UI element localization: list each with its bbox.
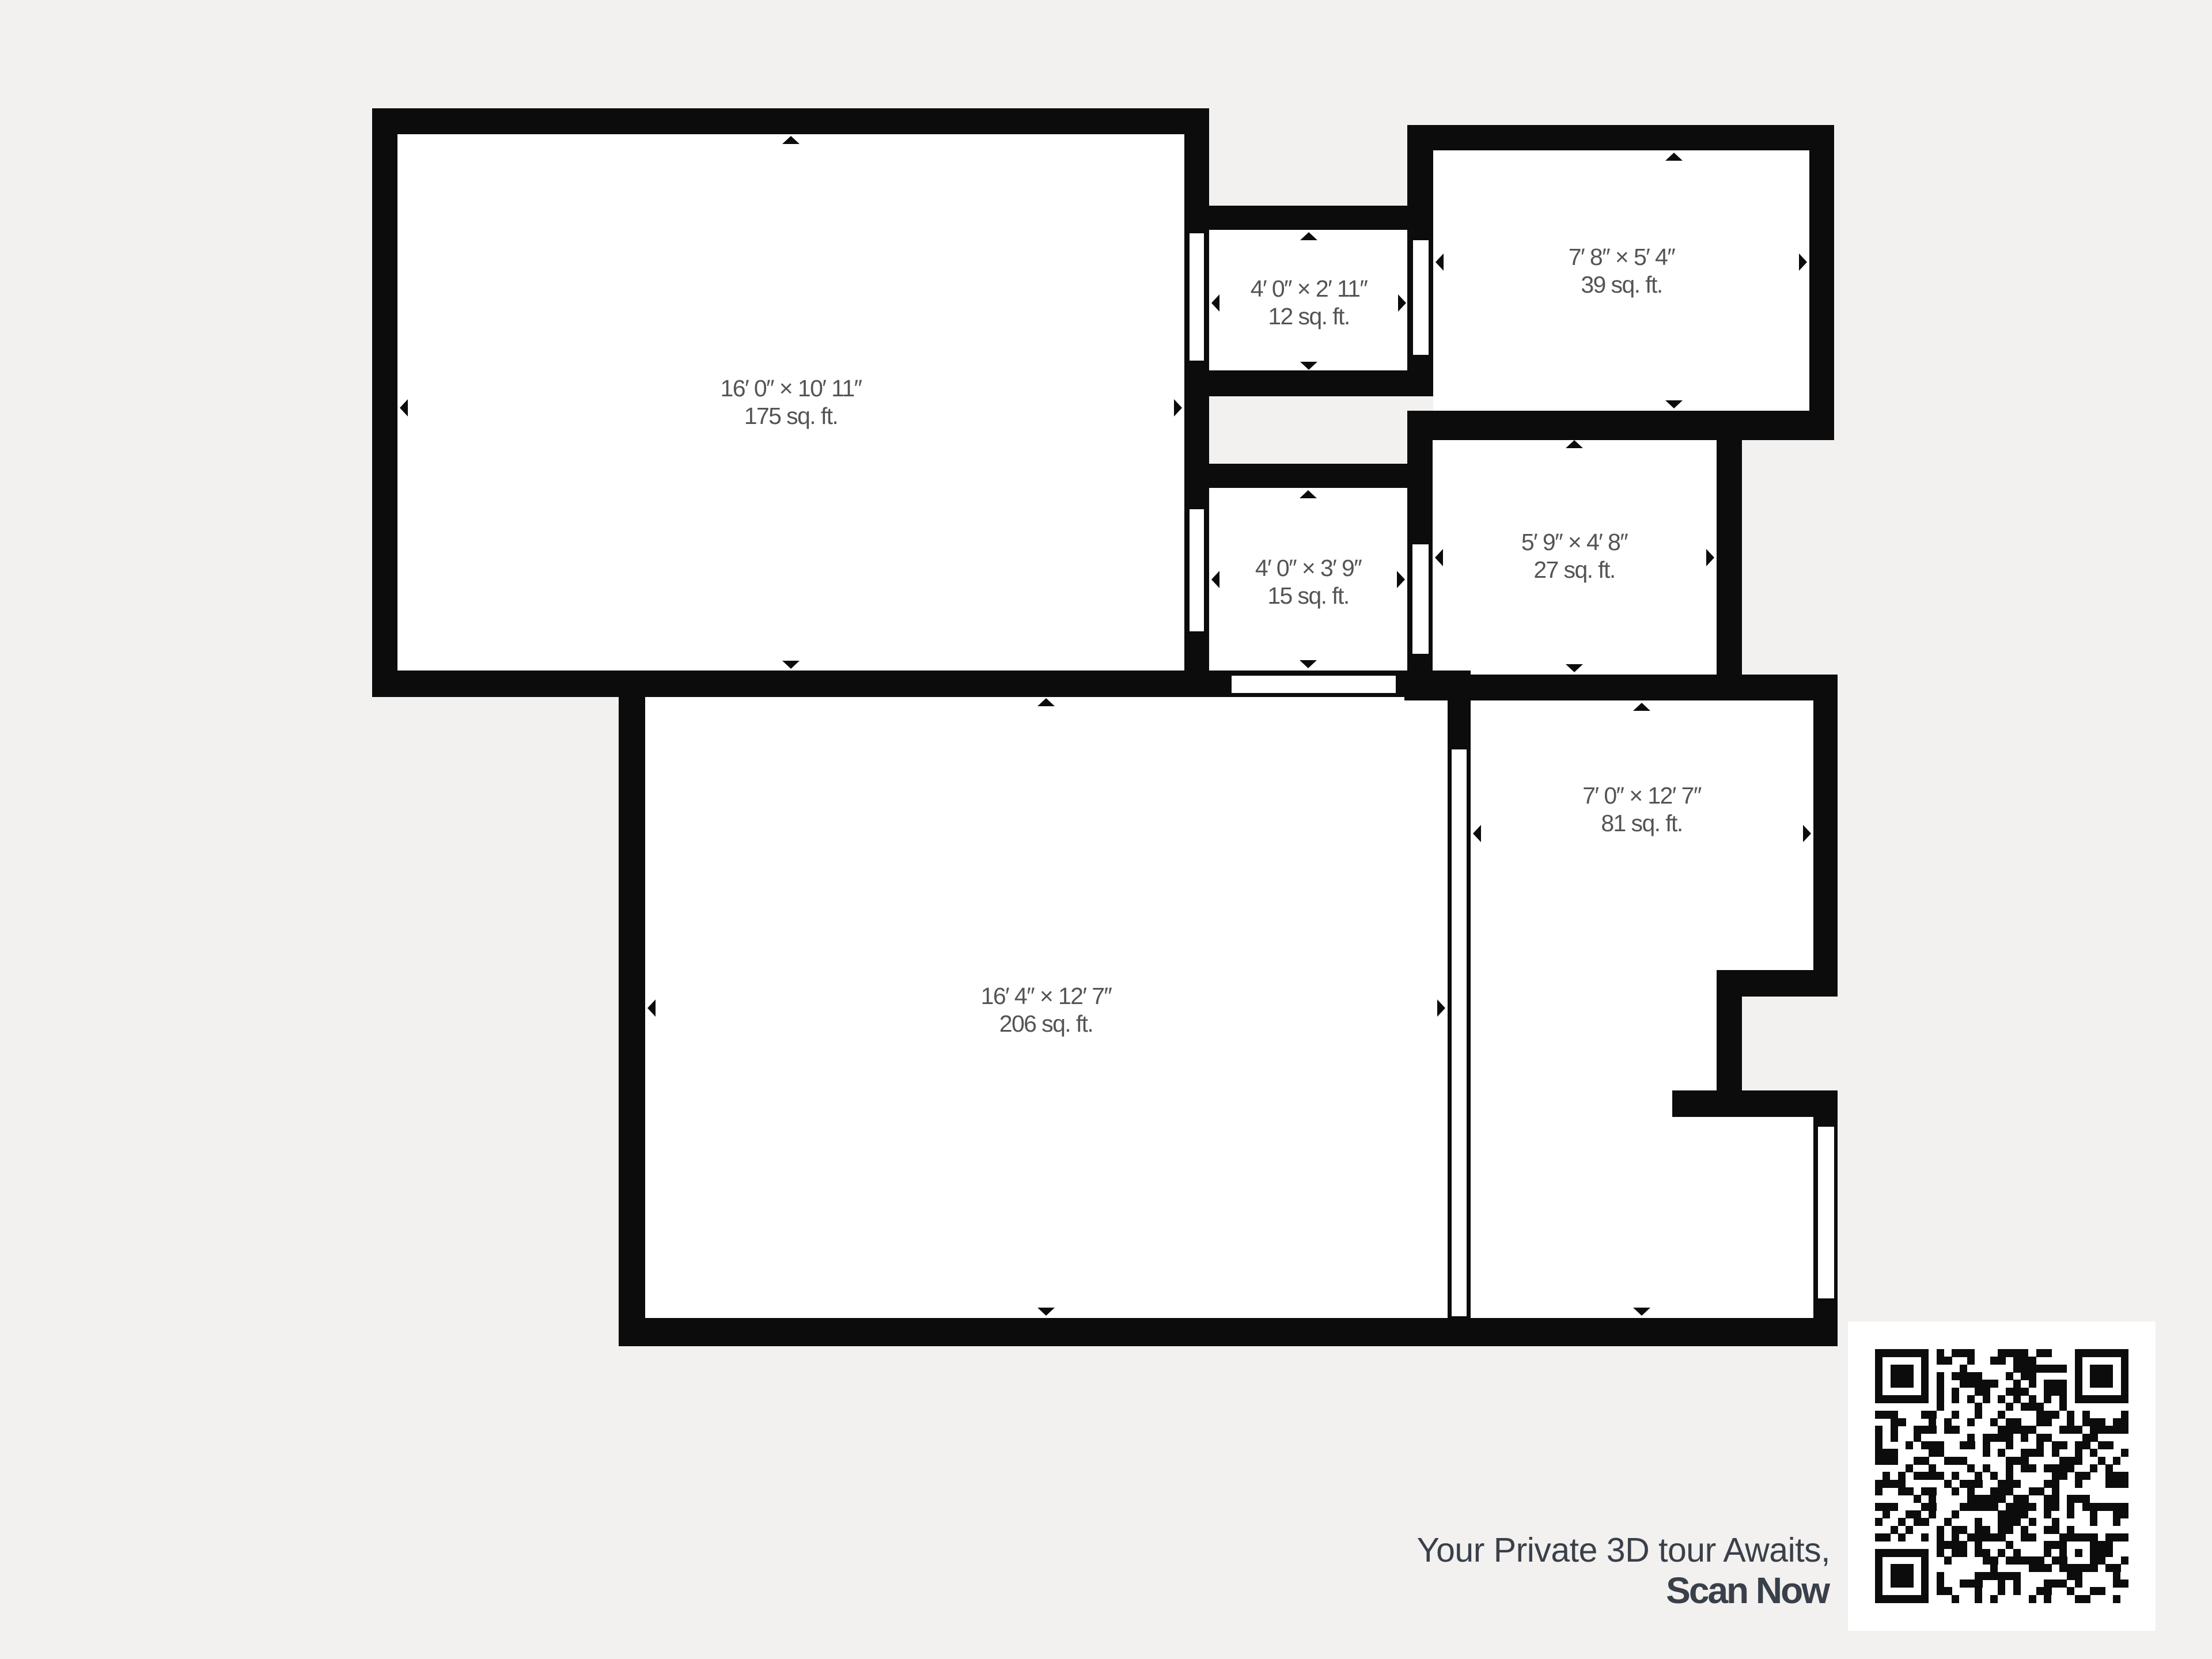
svg-text:5′ 9″ × 4′ 8″: 5′ 9″ × 4′ 8″	[1521, 529, 1628, 555]
svg-text:175 sq. ft.: 175 sq. ft.	[744, 403, 838, 429]
svg-text:4′ 0″ × 2′ 11″: 4′ 0″ × 2′ 11″	[1251, 275, 1368, 302]
svg-text:27 sq. ft.: 27 sq. ft.	[1533, 556, 1615, 583]
svg-text:206 sq. ft.: 206 sq. ft.	[999, 1010, 1093, 1037]
svg-text:39 sq. ft.: 39 sq. ft.	[1581, 271, 1662, 298]
svg-text:81 sq. ft.: 81 sq. ft.	[1601, 810, 1682, 836]
svg-text:16′ 0″ × 10′ 11″: 16′ 0″ × 10′ 11″	[721, 375, 862, 402]
svg-text:4′ 0″ × 3′ 9″: 4′ 0″ × 3′ 9″	[1255, 555, 1362, 581]
svg-text:Scan Now: Scan Now	[1666, 1570, 1830, 1611]
svg-text:7′ 8″ × 5′ 4″: 7′ 8″ × 5′ 4″	[1569, 244, 1675, 270]
svg-text:7′ 0″ × 12′ 7″: 7′ 0″ × 12′ 7″	[1582, 782, 1702, 809]
svg-text:15 sq. ft.: 15 sq. ft.	[1267, 582, 1349, 609]
svg-text:16′ 4″ × 12′ 7″: 16′ 4″ × 12′ 7″	[981, 983, 1112, 1009]
svg-text:12 sq. ft.: 12 sq. ft.	[1268, 303, 1349, 329]
svg-text:Your Private 3D tour Awaits,: Your Private 3D tour Awaits,	[1417, 1531, 1830, 1569]
